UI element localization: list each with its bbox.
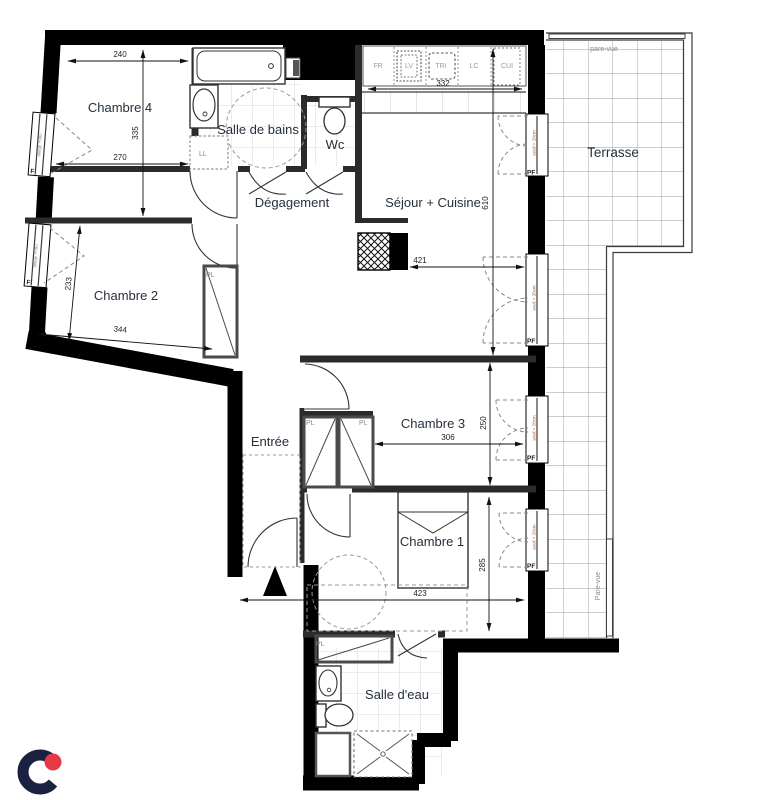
room-label-chambre1: Chambre 1 xyxy=(400,534,464,549)
floor-plan-page: pare-vue Terrasse Pare-vue xyxy=(0,0,780,800)
room-label-chambre2: Chambre 2 xyxy=(94,288,158,303)
dim-423-label: 423 xyxy=(413,589,427,598)
wall-diagonal xyxy=(27,340,232,378)
room-label-salle-deau: Salle d'eau xyxy=(365,687,429,702)
room-label-degagement: Dégagement xyxy=(255,195,330,210)
door-entrance xyxy=(248,518,297,567)
pare-vue-side-label: Pare-vue xyxy=(595,572,602,601)
dim-285-label: 285 xyxy=(478,558,487,572)
chambre1-furniture xyxy=(307,492,468,631)
kitchen-item-tri: TRI xyxy=(435,63,446,70)
room-label-terrasse: Terrasse xyxy=(587,145,639,160)
dim-306-label: 306 xyxy=(441,433,455,442)
terrace: pare-vue Terrasse Pare-vue xyxy=(546,33,692,638)
room-label-chambre3: Chambre 3 xyxy=(401,416,465,431)
pf-label: PF xyxy=(527,170,535,177)
window-pf-3: PF seuil < 20cm xyxy=(496,396,548,463)
room-label-chambre4: Chambre 4 xyxy=(88,100,152,115)
room-labels: Chambre 4 Salle de bains Wc Dégagement S… xyxy=(88,100,481,702)
pf-label: PF xyxy=(527,563,535,570)
pare-vue-screen-side xyxy=(607,539,613,636)
closet-chambre3-b-diag xyxy=(341,419,371,485)
duct-box-inner xyxy=(293,60,299,76)
seuil-label: seuil < 20cm xyxy=(532,285,537,311)
dim-344-label: 344 xyxy=(113,324,128,334)
door-chambre1 xyxy=(307,494,350,537)
door-chambre3 xyxy=(305,364,349,409)
pf-label: PF xyxy=(527,455,535,462)
window-f-label: F xyxy=(26,279,31,286)
washing-machine xyxy=(190,136,228,169)
seuil-label: seuil < 20cm xyxy=(532,415,537,441)
door-chambre2 xyxy=(192,224,237,268)
entree-zone xyxy=(243,455,300,567)
floor-plan: pare-vue Terrasse Pare-vue xyxy=(0,0,780,800)
wc-toilet-tank xyxy=(319,97,350,107)
pare-vue-label: pare-vue xyxy=(590,46,618,53)
closet-corridor-diag xyxy=(206,268,235,355)
pf-label: PF xyxy=(527,338,535,345)
technical-shaft-wall xyxy=(390,233,408,270)
kitchen-item-cui: CUI xyxy=(501,63,513,70)
dim-332-label: 332 xyxy=(436,79,450,88)
door-chambre4 xyxy=(190,171,237,218)
seuil-label: seuil < 20cm xyxy=(532,524,537,550)
accessible-zone xyxy=(307,585,467,631)
pl-label: PL xyxy=(206,272,215,279)
kitchen-item-fr: FR xyxy=(373,63,382,70)
pl-label: PL xyxy=(359,420,368,427)
kitchen-floor-band xyxy=(362,92,526,113)
bathtub xyxy=(193,48,285,84)
pare-vue-screen-top xyxy=(549,34,685,39)
technical-shaft xyxy=(358,233,390,270)
terrace-tiles-upper xyxy=(546,41,683,247)
dim-610-label: 610 xyxy=(481,196,490,210)
dim-240-label: 240 xyxy=(113,50,127,59)
pf2-swing xyxy=(483,257,528,343)
pl-label: PL xyxy=(306,420,315,427)
logo-red-dot xyxy=(45,754,62,771)
dim-421-label: 421 xyxy=(413,256,427,265)
window-pf-1: PF seuil < 20cm xyxy=(498,114,548,177)
dim-335-label: 335 xyxy=(131,126,140,140)
window-f-label: F xyxy=(30,168,35,175)
dim-233-label: 233 xyxy=(63,276,73,291)
pf3-swing xyxy=(496,400,528,460)
dim-250-label: 250 xyxy=(479,416,488,430)
room-label-salle-de-bains: Salle de bains xyxy=(217,122,299,137)
dim-270-label: 270 xyxy=(113,153,127,162)
pf4-swing xyxy=(499,513,528,567)
pf1-swing xyxy=(498,116,528,174)
window1-swing xyxy=(50,118,92,174)
seuil-label: seuil < 20cm xyxy=(532,130,537,156)
entrance-arrow xyxy=(263,566,287,596)
brand-logo xyxy=(23,754,61,790)
room-label-entree: Entrée xyxy=(251,434,289,449)
shower-closet xyxy=(316,733,350,776)
closet-chambre3-a-diag xyxy=(306,419,335,485)
toilet2-bowl xyxy=(325,704,353,726)
window-pf-4: PF seuil < 20cm xyxy=(499,509,548,571)
room-label-wc: Wc xyxy=(326,137,345,152)
wall-left-slanted xyxy=(37,37,54,341)
wc-toilet-bowl xyxy=(324,108,345,134)
ll-label: LL xyxy=(199,151,207,158)
kitchen-item-lc: LC xyxy=(470,63,479,70)
room-label-sejour: Séjour + Cuisine xyxy=(385,195,481,210)
pl-label: PL xyxy=(316,641,325,648)
kitchen-item-lv: LV xyxy=(405,63,413,70)
turning-circle-chambre1 xyxy=(312,555,386,629)
